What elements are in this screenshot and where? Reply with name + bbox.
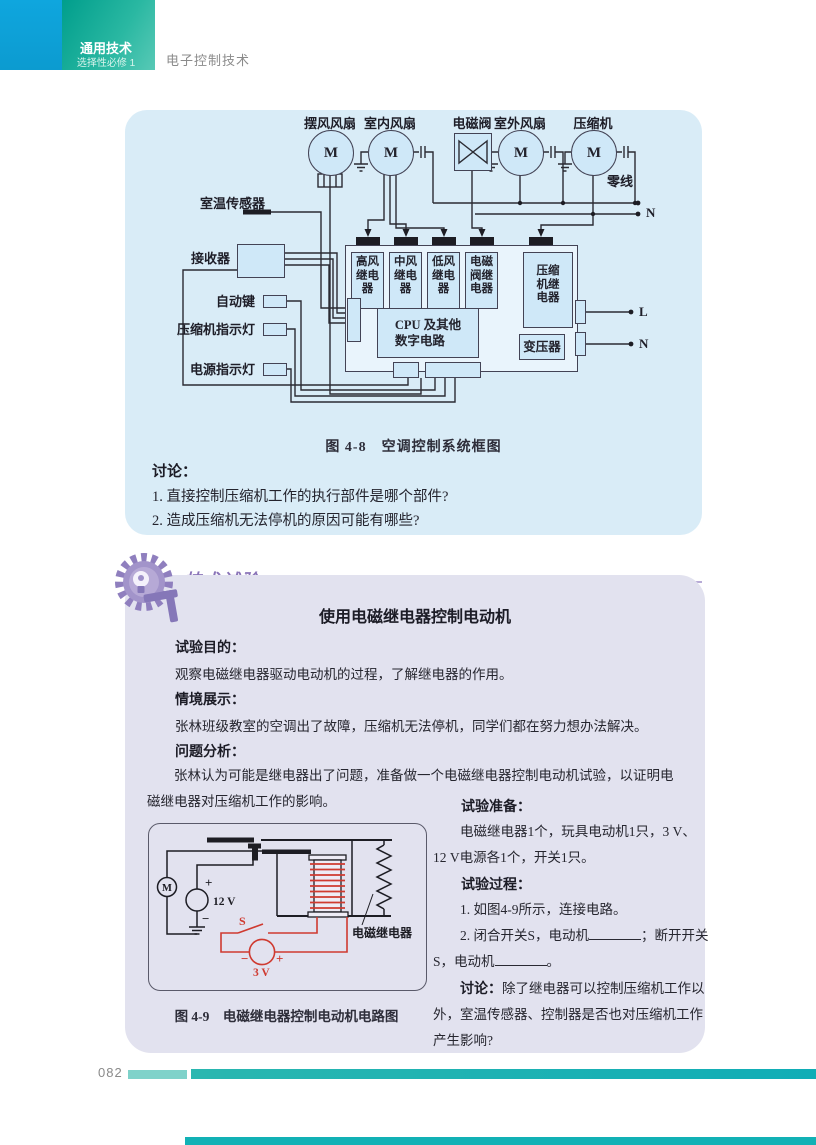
board-bottom-connector-a (393, 362, 419, 378)
coil (308, 855, 348, 917)
transformer-label: 变压器 (523, 339, 561, 355)
motor-swing-fan: M (308, 130, 354, 176)
step2-part-a: 2. 闭合开关S，电动机 (460, 928, 589, 943)
discussion-question-1: 1. 直接控制压缩机工作的执行部件是哪个部件? (152, 485, 448, 506)
relay-pointer-label: 电磁继电器 (352, 925, 413, 940)
experiment-panel: 使用电磁继电器控制电动机 试验目的： 观察电磁继电器驱动电动机的过程，了解继电器… (125, 575, 705, 1053)
motor-letter: M (324, 145, 338, 162)
discussion-question-2: 2. 造成压缩机无法停机的原因可能有哪些? (152, 509, 419, 530)
experiment-discussion: 讨论：除了继电器可以控制压缩机工作以外，室温传感器、控制器是否也对压缩机工作产生… (433, 975, 709, 1054)
figure-4-9-box: M + − 12 V S − + 3 V 电磁继电器 (148, 823, 427, 991)
experiment-title: 使用电磁继电器控制电动机 (125, 603, 705, 627)
prep-heading: 试验准备： (433, 793, 709, 819)
board-right-connector-n (575, 332, 586, 356)
motor-outdoor-fan: M (498, 130, 544, 176)
prep-text: 电磁继电器1个，玩具电动机1只，3 V、12 V电源各1个，开关1只。 (433, 819, 709, 871)
valve-bowtie-icon (458, 139, 488, 165)
cpu-box: CPU 及其他 数字电路 (377, 308, 479, 358)
board-left-connector (347, 298, 361, 342)
plus-sign-3v: + (276, 951, 283, 966)
n-terminal-label: N (639, 336, 659, 351)
board-right-connector-l (575, 300, 586, 324)
receiver-box (237, 244, 285, 278)
fill-in-blank-2 (495, 951, 547, 966)
footer-bar-large (191, 1069, 816, 1079)
label-compressor-indicator: 压缩机指示灯 (135, 322, 255, 337)
process-heading: 试验过程： (433, 871, 709, 897)
motor-compressor: M (571, 130, 617, 176)
plus-sign-12v: + (205, 875, 212, 890)
minus-sign-3v: − (241, 951, 248, 966)
purpose-heading: 试验目的： (175, 637, 245, 657)
transformer-box: 变压器 (519, 334, 565, 360)
figure-4-8-diagram: 摆风风扇 室内风扇 电磁阀 室外风扇 压缩机 M M M M 零线 N 室温传感… (125, 110, 702, 450)
label-receiver: 接收器 (150, 251, 230, 266)
figure-4-8-caption: 图 4-8 空调控制系统框图 (125, 436, 702, 456)
motor-letter: M (587, 145, 601, 162)
l-terminal-label: L (639, 304, 659, 319)
relay-mid-wind: 中风继电器 (389, 252, 422, 309)
v3-label: 3 V (253, 967, 270, 979)
footer-bar-small (128, 1070, 187, 1079)
black-circuit (158, 840, 393, 934)
component-label-outdoor-fan: 室外风扇 (480, 116, 560, 131)
relay-circuit-svg: M + − 12 V S − + 3 V 电磁继电器 (149, 824, 426, 990)
header-blue-block (0, 0, 62, 70)
discussion-heading: 讨论： (152, 460, 197, 481)
cpu-label: CPU 及其他 数字电路 (395, 317, 461, 349)
label-room-temp-sensor: 室温传感器 (150, 196, 265, 211)
gear-bulb-icon (108, 542, 190, 628)
experiment-right-column: 试验准备： 电磁继电器1个，玩具电动机1只，3 V、12 V电源各1个，开关1只… (433, 793, 709, 1054)
power-indicator-box (263, 363, 287, 376)
label-auto-key: 自动键 (155, 294, 255, 309)
book-subtitle: 选择性必修 1 (62, 54, 150, 69)
relay-solenoid-valve: 电磁阀继电器 (465, 252, 498, 309)
purpose-text: 观察电磁继电器驱动电动机的过程，了解继电器的作用。 (175, 663, 513, 683)
discussion-label: 讨论： (460, 980, 502, 996)
process-step-2: 2. 闭合开关S，电动机；断开开关S，电动机。 (433, 923, 709, 975)
ac-control-panel: 摆风风扇 室内风扇 电磁阀 室外风扇 压缩机 M M M M 零线 N 室温传感… (125, 110, 702, 535)
compressor-indicator-box (263, 323, 287, 336)
process-step-1: 1. 如图4-9所示，连接电路。 (433, 897, 709, 923)
page-number: 082 (98, 1065, 123, 1080)
solenoid-valve-symbol (454, 133, 492, 171)
board-bottom-connector-b (425, 362, 481, 378)
figure-4-9-caption: 图 4-9 电磁继电器控制电动机电路图 (135, 1005, 438, 1025)
auto-key-box (263, 295, 287, 308)
label-power-indicator: 电源指示灯 (135, 362, 255, 377)
v12-label: 12 V (213, 896, 236, 908)
motor-letter: M (162, 883, 172, 894)
relay-compressor: 压缩机继电器 (523, 252, 573, 328)
neutral-line-label: 零线 (607, 174, 667, 189)
minus-sign-12v: − (202, 911, 209, 926)
context-text: 张林班级教室的空调出了故障，压缩机无法停机，同学们都在努力想办法解决。 (175, 715, 648, 735)
context-heading: 情境展示： (175, 689, 245, 709)
component-label-indoor-fan: 室内风扇 (350, 116, 430, 131)
switch-label: S (239, 914, 246, 928)
motor-letter: M (514, 145, 528, 162)
n-terminal-top-label: N (646, 205, 670, 220)
step2-part-c: 。 (547, 954, 561, 969)
component-label-compressor: 压缩机 (553, 116, 633, 131)
motor-indoor-fan: M (368, 130, 414, 176)
motor-letter: M (384, 145, 398, 162)
analysis-heading: 问题分析： (175, 741, 245, 761)
chapter-title: 电子控制技术 (166, 50, 250, 69)
page-bottom-strip (185, 1137, 816, 1145)
relay-low-wind: 低风继电器 (427, 252, 460, 309)
textbook-page: 通用技术 选择性必修 1 电子控制技术 (0, 0, 816, 1145)
fill-in-blank-1 (589, 925, 641, 940)
